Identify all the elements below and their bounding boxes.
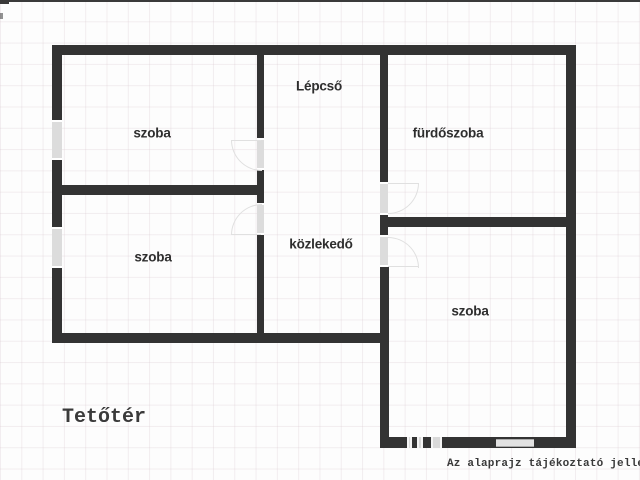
label-room-bottom-left: szoba (134, 250, 171, 265)
door-arc-room-top-left (231, 140, 262, 171)
label-hallway: közlekedő (289, 237, 352, 252)
label-staircase: Lépcső (296, 79, 342, 94)
door-opening-room-right (380, 235, 388, 267)
threshold-segment-2 (417, 437, 423, 448)
door-leaf-room-right (388, 266, 418, 267)
label-room-top-left: szoba (133, 126, 170, 141)
wall-outer-left (52, 45, 62, 343)
wall-divider-left-rooms (62, 185, 257, 195)
window-bottom-right-room (496, 439, 534, 447)
wall-corridor-right-middle (380, 215, 388, 235)
threshold-segment-3 (431, 437, 442, 448)
window-left-top (52, 120, 62, 160)
floor-name-caption: Tetőtér (62, 406, 146, 429)
wall-corridor-left-middle (257, 170, 264, 203)
door-arc-room-right (388, 237, 419, 268)
window-left-bottom (52, 227, 62, 268)
label-bathroom: fürdőszoba (413, 126, 484, 141)
left-edge-mark (0, 13, 3, 19)
wall-outer-right (566, 45, 576, 448)
wall-outer-top (52, 45, 576, 55)
door-leaf-room-bottom-left (231, 234, 261, 235)
wall-corridor-left-lower (257, 235, 264, 333)
wall-corridor-left-upper (257, 55, 264, 138)
disclaimer-caption: Az alaprajz tájékoztató jellegű (447, 458, 640, 470)
top-edge-line (0, 0, 640, 2)
wall-corridor-right-lower (380, 267, 389, 437)
threshold-segment-1 (407, 437, 412, 448)
door-arc-bathroom (388, 183, 419, 214)
top-left-mark (0, 0, 9, 4)
wall-divider-bathroom (388, 217, 566, 227)
wall-outer-bottom-left (52, 333, 389, 343)
door-arc-room-bottom-left (231, 204, 262, 235)
door-leaf-bathroom (388, 183, 418, 184)
door-leaf-room-top-left (231, 140, 261, 141)
label-room-right: szoba (451, 304, 488, 319)
wall-corridor-right-upper (380, 55, 388, 182)
floorplan-canvas: Lépcső szoba fürdőszoba szoba közlekedő … (0, 0, 640, 480)
door-opening-bathroom (380, 182, 388, 215)
